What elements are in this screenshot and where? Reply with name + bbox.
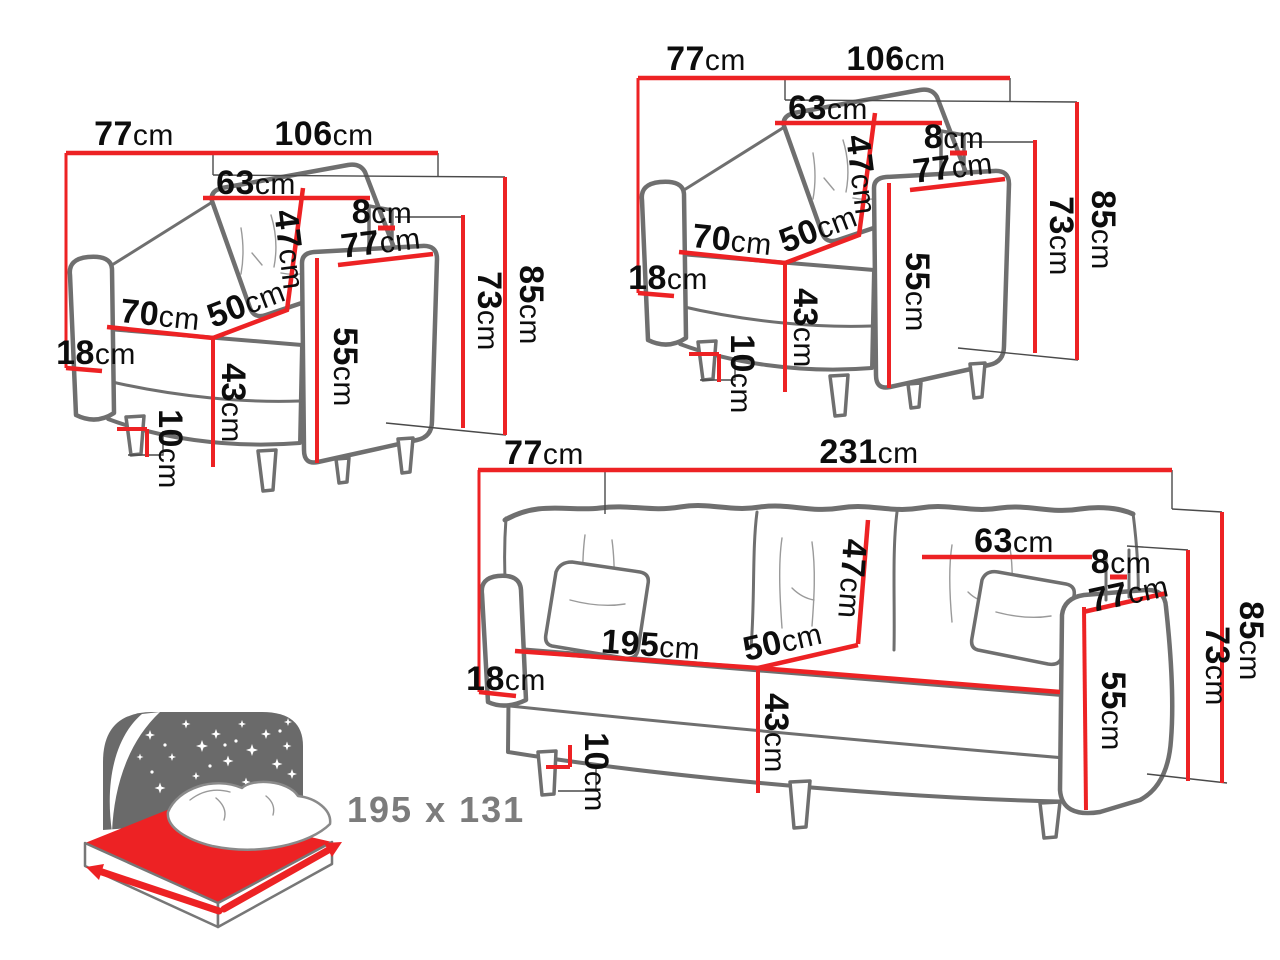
dim-sofa-total-height: 85cm (1232, 601, 1270, 681)
dim-armchair-base-height: 18cm (56, 334, 136, 372)
dim-sofa-armrest-height: 55cm (1094, 671, 1132, 751)
dim-armchair-width-total: 106cm (274, 115, 373, 153)
armchair-right-armrest (302, 246, 437, 463)
dim-sofa-backrest-height: 73cm (1198, 626, 1236, 706)
dim-sofa-width-total: 231cm (819, 433, 918, 471)
dim-armchair-total-height: 85cm (512, 265, 550, 345)
sleeping-area-size: 195 x 131 (347, 789, 525, 830)
dim-armchair-armrest-height: 55cm (326, 327, 364, 407)
dim-sofa-depth-top: 77cm (504, 434, 584, 472)
dim-armchair-back-cushion-width: 63cm (216, 164, 296, 202)
dim-sofa-base-height: 18cm (466, 660, 546, 698)
dim-armchair-depth-top: 77cm (94, 115, 174, 153)
dim-armchair-seat-height: 43cm (214, 363, 252, 443)
dim-armchair-leg-height: 10cm (151, 409, 189, 489)
dim-sofa-back-cushion-width: 63cm (974, 522, 1054, 560)
dim-sofa-seat-height: 43cm (757, 693, 795, 773)
sofa-right-pillow (972, 572, 1075, 665)
furniture-dimensions-page: 77cm 106cm 63cm 8cm 77cm 47cm 50cm 70cm … (0, 0, 1280, 960)
dim-armchair-backrest-height: 73cm (470, 271, 508, 351)
furniture-dimensions-diagram: 77cm 106cm 63cm 8cm 77cm 47cm 50cm 70cm … (0, 0, 1280, 960)
dim-sofa-leg-height: 10cm (577, 732, 615, 812)
